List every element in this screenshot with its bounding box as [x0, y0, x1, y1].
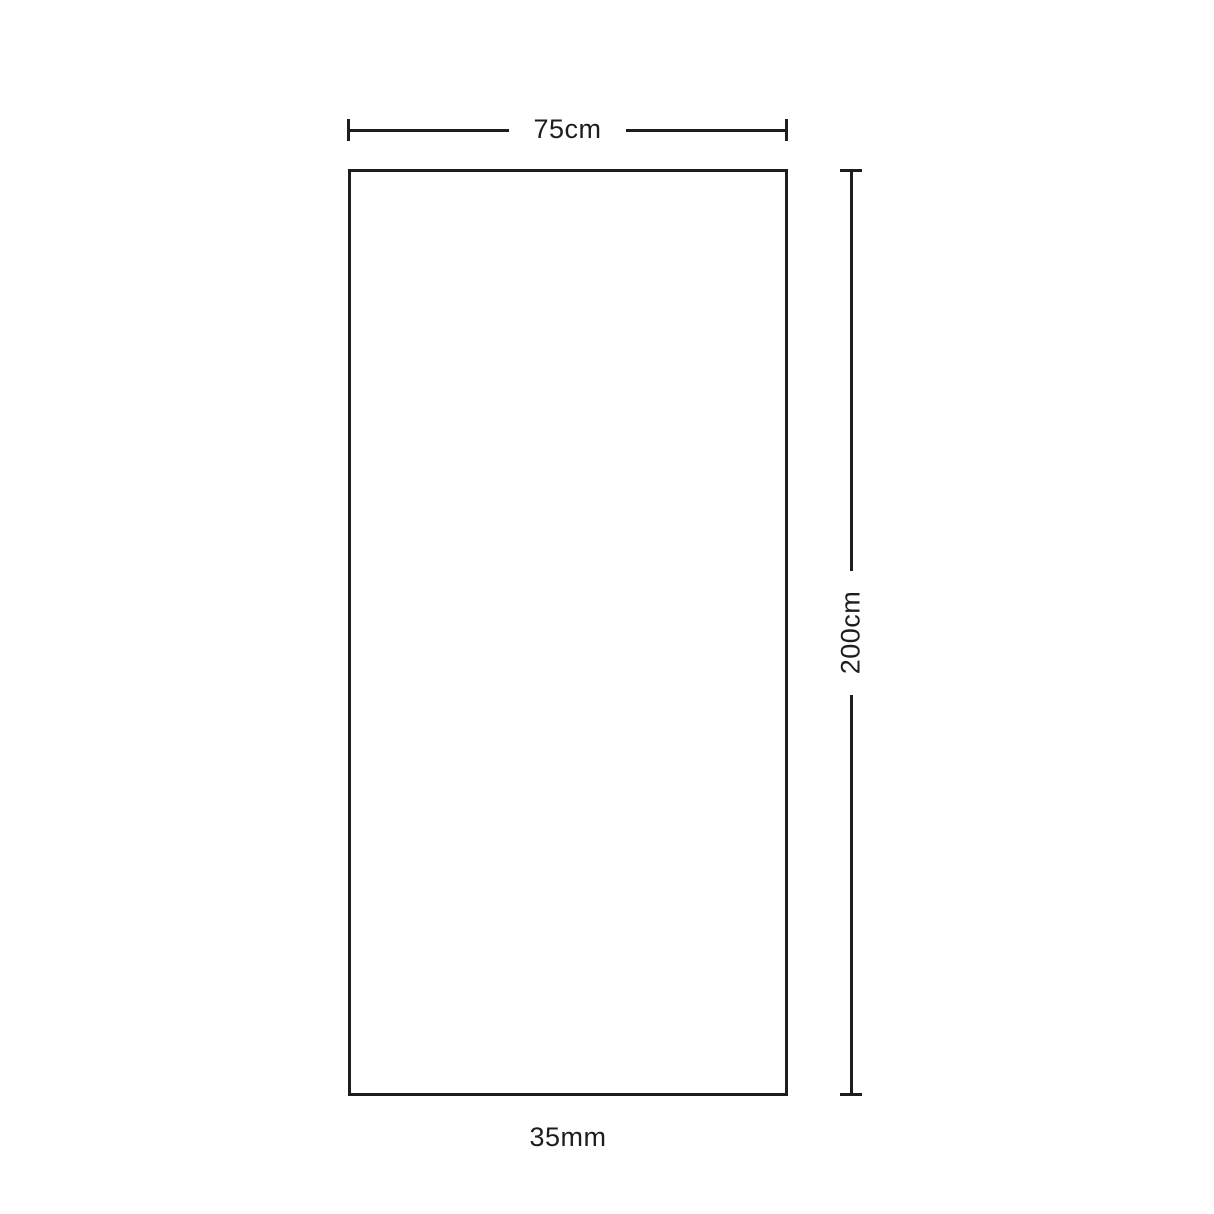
width-dimension-label: 75cm: [509, 116, 625, 143]
height-dimension: 200cm: [840, 169, 862, 1096]
width-dimension-tick-right: [785, 119, 788, 141]
dimension-diagram: 75cm 200cm 35mm: [0, 0, 1214, 1214]
thickness-label: 35mm: [348, 1124, 788, 1151]
width-dimension-line-right: [626, 129, 785, 132]
height-dimension-line-bottom: [850, 695, 853, 1094]
height-dimension-line-top: [850, 172, 853, 571]
width-dimension: 75cm: [347, 119, 788, 141]
width-dimension-line-left: [350, 129, 509, 132]
height-dimension-tick-bottom: [840, 1093, 862, 1096]
height-dimension-label: 200cm: [838, 591, 865, 675]
height-dimension-label-wrap: 200cm: [840, 571, 862, 695]
panel-outline: [348, 169, 788, 1096]
